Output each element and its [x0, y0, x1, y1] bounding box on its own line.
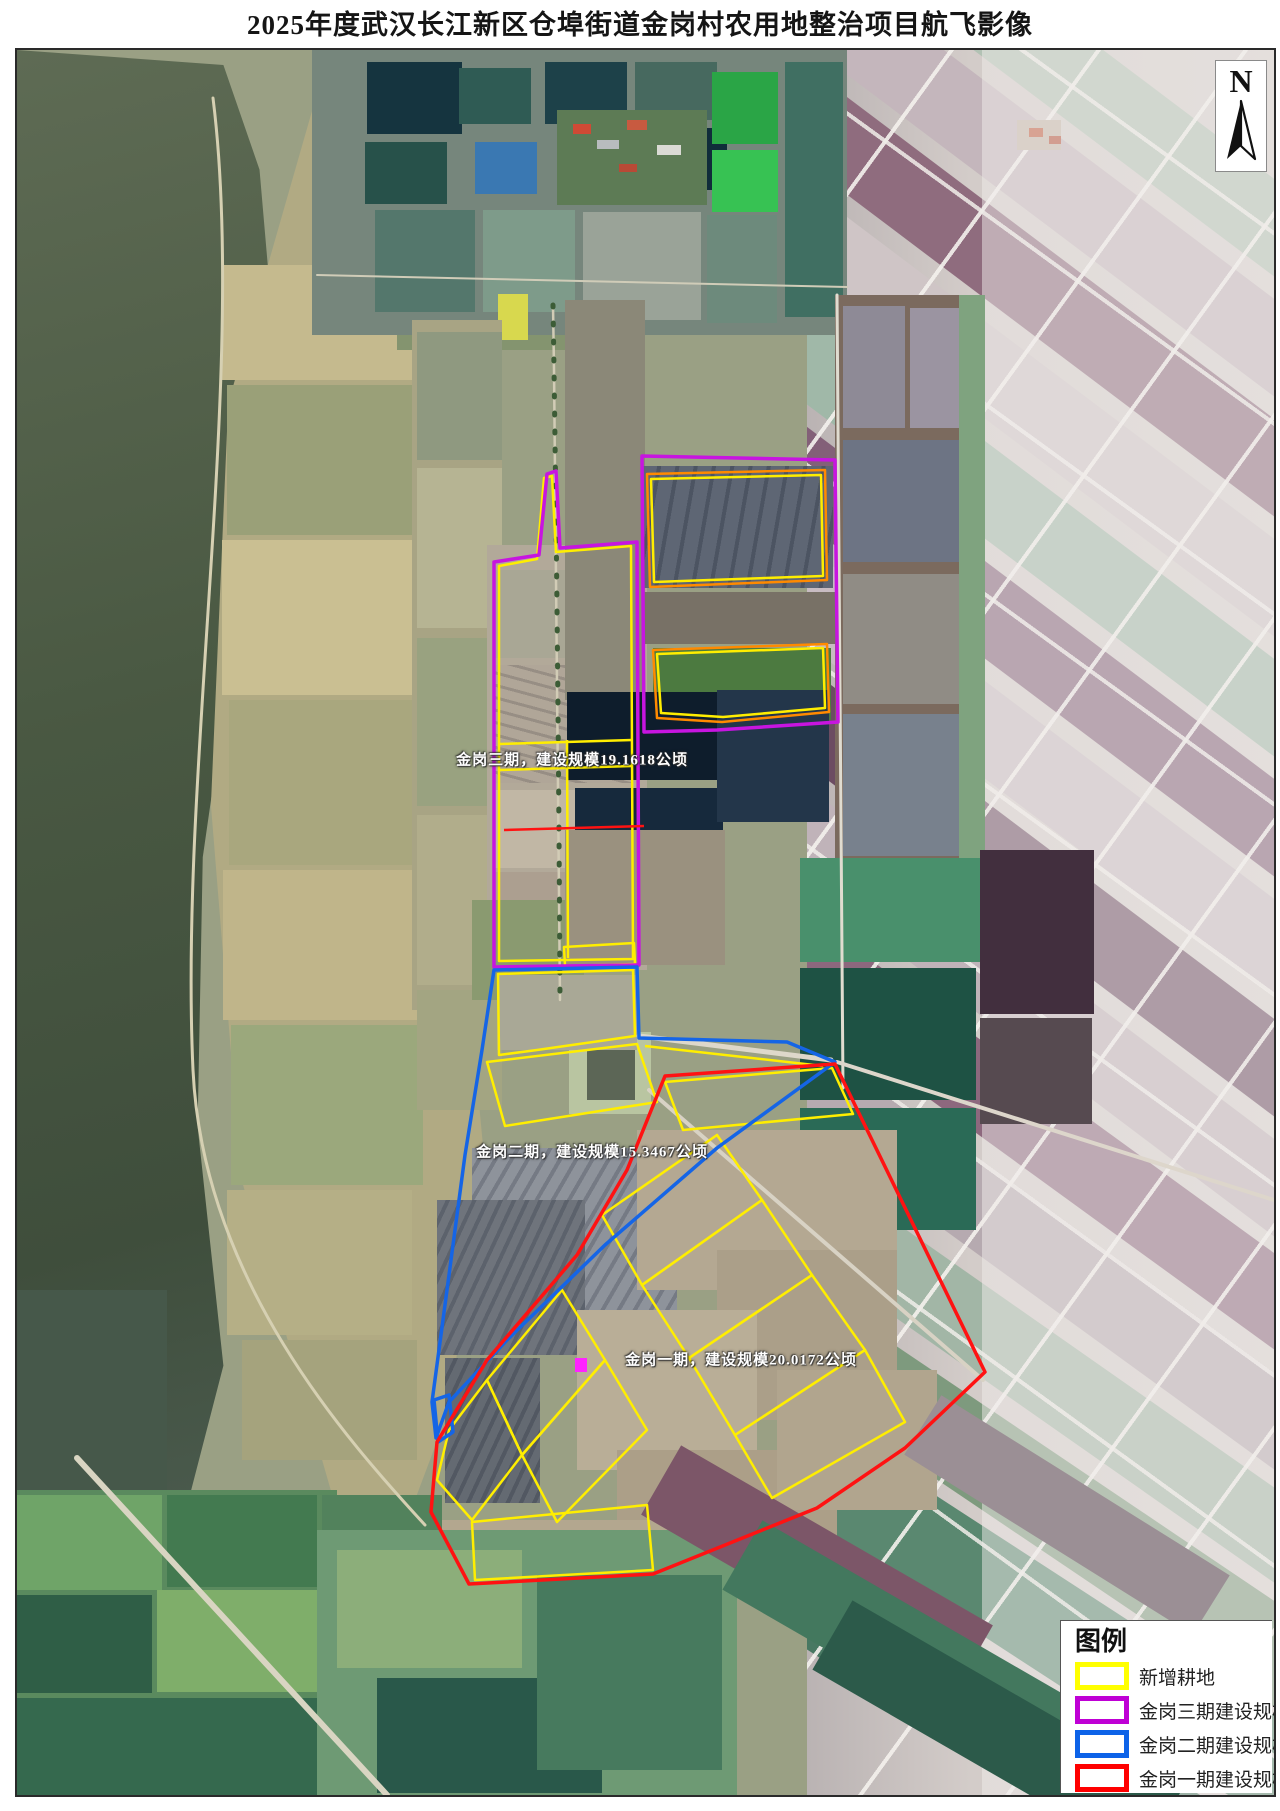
phase2-area-label: 金岗二期，建设规模15.3467公顷	[476, 1141, 708, 1162]
legend-swatch-phase2	[1075, 1730, 1129, 1758]
orange-parcel-outlines	[647, 470, 829, 722]
phase1-area-label: 金岗一期，建设规模20.0172公顷	[625, 1349, 857, 1370]
legend-swatch-phase3	[1075, 1696, 1129, 1724]
legend: 图例 新增耕地 金岗三期建设规模 金岗二期建设规模 金岗一期建设规模	[1060, 1620, 1272, 1793]
road-lines	[77, 98, 1274, 1795]
phase1-boundary	[431, 826, 985, 1584]
legend-label-phase2: 金岗二期建设规模	[1139, 1731, 1276, 1758]
legend-label-new-farmland: 新增耕地	[1139, 1663, 1215, 1690]
phase2-boundary	[432, 967, 835, 1442]
north-arrow: N	[1215, 60, 1267, 172]
aerial-map: 金岗三期，建设规模19.1618公顷 金岗二期，建设规模15.3467公顷 金岗…	[15, 48, 1276, 1797]
legend-label-phase3: 金岗三期建设规模	[1139, 1697, 1276, 1724]
map-title: 2025年度武汉长江新区仓埠街道金岗村农用地整治项目航飞影像	[0, 4, 1280, 46]
new-farmland-outlines	[437, 475, 905, 1580]
page: 2025年度武汉长江新区仓埠街道金岗村农用地整治项目航飞影像	[0, 0, 1280, 1811]
north-arrow-needle-icon	[1221, 99, 1261, 165]
legend-swatch-new-farmland	[1075, 1662, 1129, 1690]
legend-swatch-phase1	[1075, 1764, 1129, 1792]
legend-row-phase2: 金岗二期建设规模	[1075, 1729, 1272, 1759]
legend-row-phase1: 金岗一期建设规模	[1075, 1763, 1272, 1793]
map-overlay-graphics	[17, 50, 1274, 1795]
phase3-area-label: 金岗三期，建设规模19.1618公顷	[456, 749, 688, 770]
legend-row-phase3: 金岗三期建设规模	[1075, 1695, 1272, 1725]
north-arrow-letter: N	[1229, 63, 1252, 99]
legend-label-phase1: 金岗一期建设规模	[1139, 1765, 1276, 1792]
legend-heading: 图例	[1075, 1627, 1272, 1657]
legend-row-new-farmland: 新增耕地	[1075, 1661, 1272, 1691]
magenta-marker-dot	[575, 1358, 587, 1372]
